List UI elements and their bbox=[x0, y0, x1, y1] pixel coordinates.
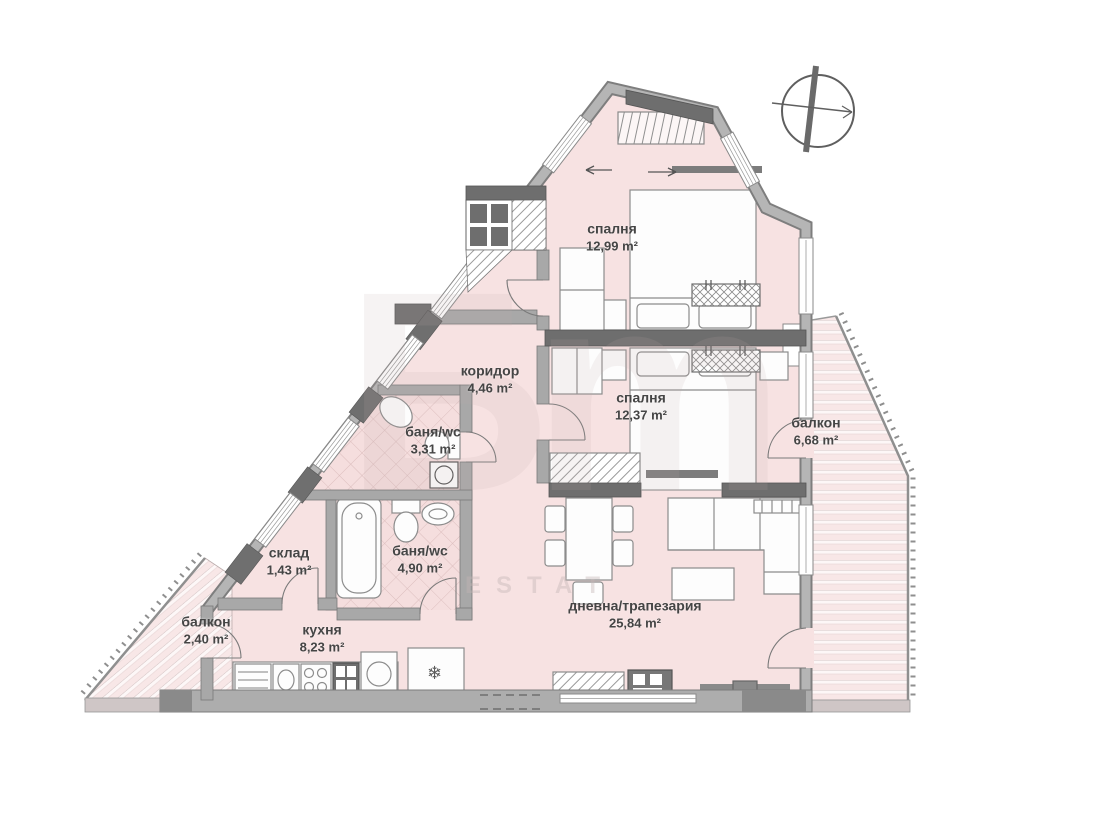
room-label-bathroom-2: баня/wc 4,90 m² bbox=[392, 543, 448, 578]
freezer-icon: ❄ bbox=[427, 663, 442, 684]
room-area: 4,46 m² bbox=[461, 381, 520, 398]
room-label-bedroom-mid: спалня 12,37 m² bbox=[615, 390, 667, 425]
room-name: кухня bbox=[300, 622, 345, 640]
room-name: спалня bbox=[615, 390, 667, 408]
room-area: 6,68 m² bbox=[791, 433, 840, 450]
room-name: балкон bbox=[791, 415, 840, 433]
room-area: 2,40 m² bbox=[181, 632, 230, 649]
room-label-corridor: коридор 4,46 m² bbox=[461, 363, 520, 398]
room-label-bathroom-1: баня/wc 3,31 m² bbox=[405, 424, 461, 459]
room-name: баня/wc bbox=[405, 424, 461, 442]
room-name: коридор bbox=[461, 363, 520, 381]
room-area: 8,23 m² bbox=[300, 640, 345, 657]
room-label-kitchen: кухня 8,23 m² bbox=[300, 622, 345, 657]
room-label-bedroom-top: спалня 12,99 m² bbox=[586, 221, 638, 256]
room-name: балкон bbox=[181, 614, 230, 632]
room-area: 3,31 m² bbox=[405, 442, 461, 459]
room-area: 4,90 m² bbox=[392, 561, 448, 578]
room-name: спалня bbox=[586, 221, 638, 239]
room-area: 12,37 m² bbox=[615, 408, 667, 425]
room-label-balcony-right: балкон 6,68 m² bbox=[791, 415, 840, 450]
room-label-balcony-left: балкон 2,40 m² bbox=[181, 614, 230, 649]
floorplan-drawing bbox=[0, 0, 1103, 817]
room-label-storage: склад 1,43 m² bbox=[267, 545, 312, 580]
room-area: 25,84 m² bbox=[568, 616, 701, 633]
room-area: 12,99 m² bbox=[586, 239, 638, 256]
room-name: дневна/трапезария bbox=[568, 598, 701, 616]
floorplan-canvas: Бm ESTAT спалня 12,99 m² коридор 4,46 m²… bbox=[0, 0, 1103, 817]
room-label-living-dining: дневна/трапезария 25,84 m² bbox=[568, 598, 701, 633]
room-area: 1,43 m² bbox=[267, 563, 312, 580]
room-name: склад bbox=[267, 545, 312, 563]
room-name: баня/wc bbox=[392, 543, 448, 561]
north-compass-icon bbox=[772, 66, 854, 152]
